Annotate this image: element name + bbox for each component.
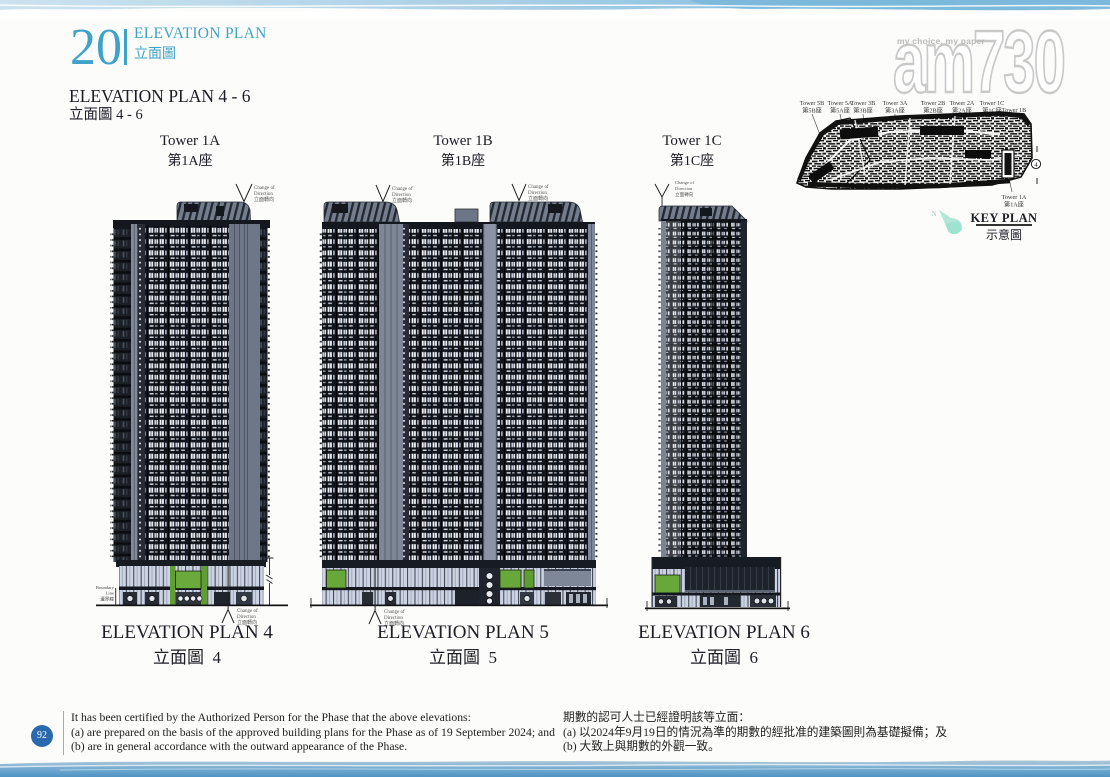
svg-text:Tower 1C: Tower 1C xyxy=(980,100,1004,107)
svg-text:N: N xyxy=(932,210,938,218)
svg-text:Tower 2B: Tower 2B xyxy=(921,100,945,107)
svg-text:Tower 5B: Tower 5B xyxy=(800,100,824,107)
svg-text:第3A座: 第3A座 xyxy=(885,107,905,115)
svg-text:Direction: Direction xyxy=(384,616,403,621)
svg-text:Change of: Change of xyxy=(675,180,694,185)
svg-text:Direction: Direction xyxy=(237,615,256,620)
svg-text:第1A座: 第1A座 xyxy=(1004,201,1024,209)
svg-text:Tower 3A: Tower 3A xyxy=(883,100,908,107)
svg-text:Change of: Change of xyxy=(392,187,413,192)
svg-text:第5B座: 第5B座 xyxy=(802,107,822,115)
svg-text:Tower 2A: Tower 2A xyxy=(950,100,975,107)
svg-text:立面轉向: 立面轉向 xyxy=(254,196,274,203)
svg-text:Change of: Change of xyxy=(528,185,549,190)
svg-text:Direction: Direction xyxy=(254,192,273,197)
svg-text:Change of: Change of xyxy=(384,610,405,615)
svg-text:立面轉向: 立面轉向 xyxy=(528,195,548,202)
svg-text:Tower 5A: Tower 5A xyxy=(828,100,853,107)
svg-text:邊界線: 邊界線 xyxy=(100,596,114,603)
svg-text:立面轉向: 立面轉向 xyxy=(675,191,694,198)
svg-text:第5A座: 第5A座 xyxy=(830,107,850,115)
svg-text:Direction: Direction xyxy=(392,193,411,198)
svg-text:Change of: Change of xyxy=(254,186,275,191)
svg-text:Direction: Direction xyxy=(675,186,693,191)
svg-text:Direction: Direction xyxy=(528,191,547,196)
svg-text:立面轉向: 立面轉向 xyxy=(392,197,412,204)
svg-text:Change of: Change of xyxy=(237,609,258,614)
svg-text:第3B座: 第3B座 xyxy=(853,107,873,115)
svg-text:Tower 1A: Tower 1A xyxy=(1002,194,1027,201)
svg-text:Boundary: Boundary xyxy=(96,585,115,590)
svg-text:Tower 3B: Tower 3B xyxy=(851,100,875,107)
svg-text:Line: Line xyxy=(106,591,114,596)
svg-text:第2B座: 第2B座 xyxy=(923,107,943,115)
